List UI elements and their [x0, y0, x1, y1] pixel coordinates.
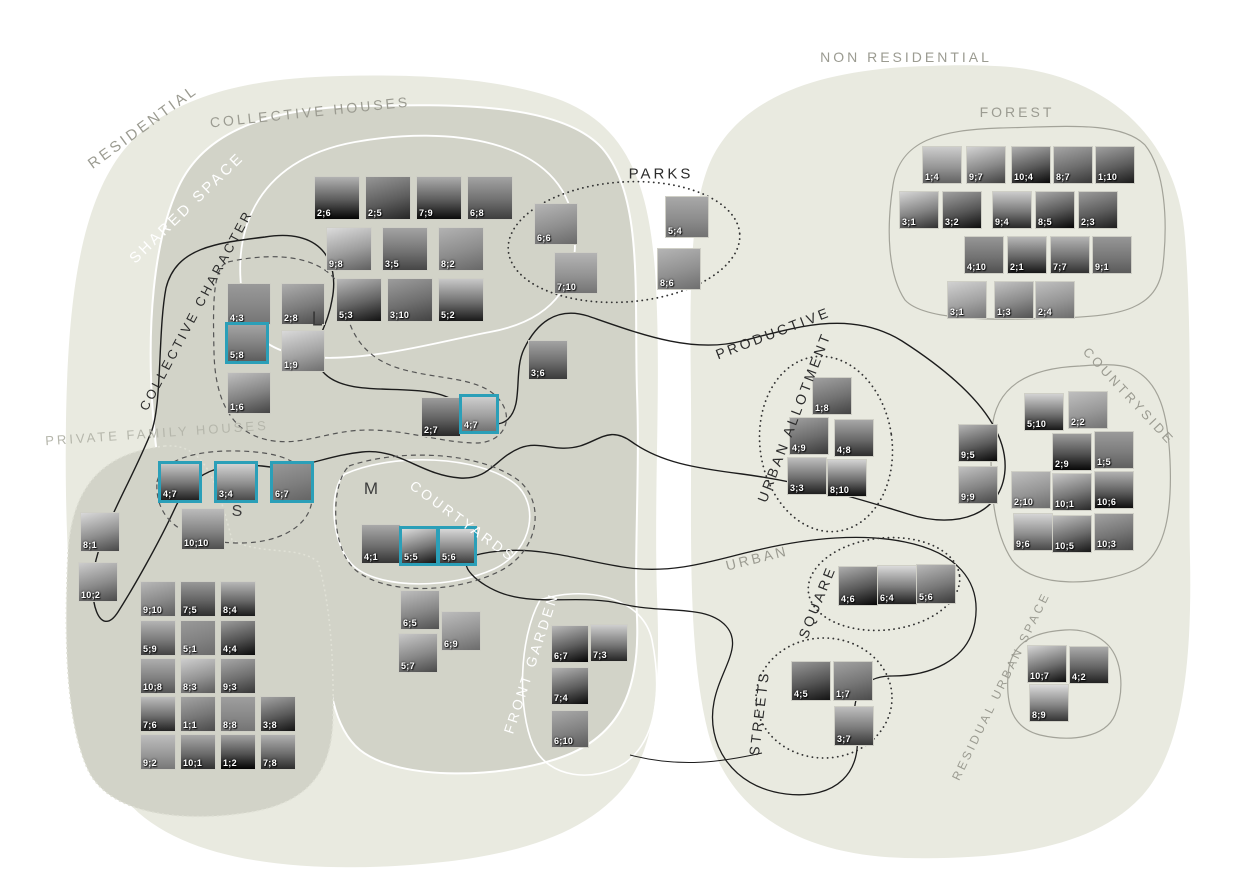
non-residential-blob — [690, 65, 1190, 858]
typology-diagram: 2;62;57;96;89;83;58;25;33;105;24;32;85;8… — [0, 0, 1246, 874]
diagram-blobs-layer — [0, 0, 1246, 874]
